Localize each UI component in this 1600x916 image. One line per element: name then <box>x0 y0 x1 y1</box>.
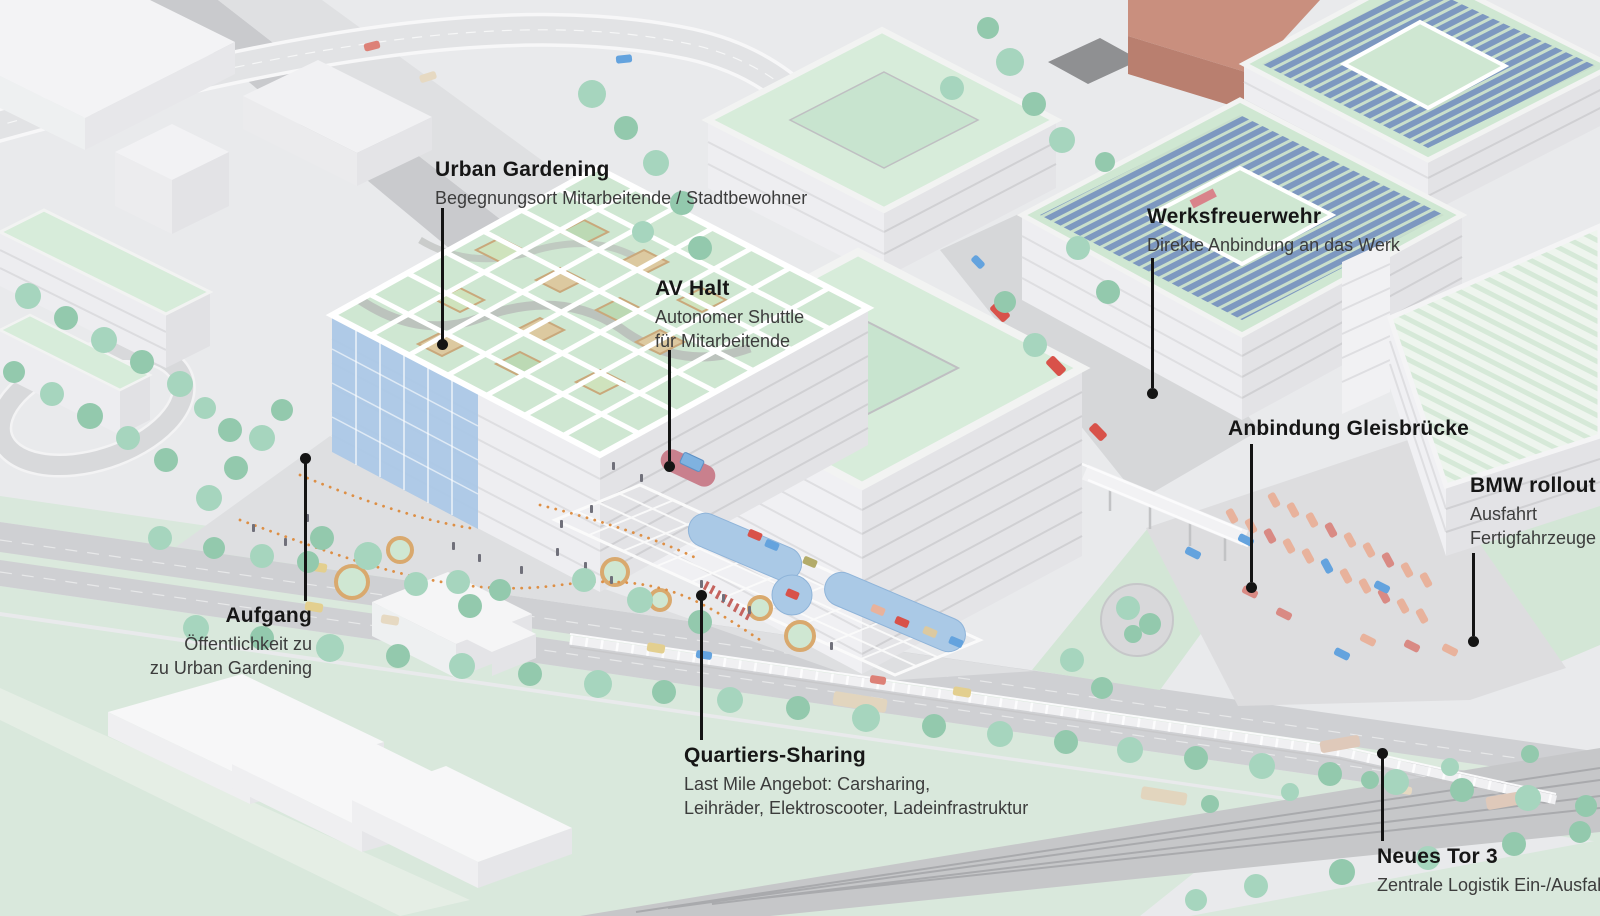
leader-line <box>441 208 444 343</box>
annotation-quartiers-sharing: Quartiers-Sharing Last Mile Angebot: Car… <box>684 744 1028 820</box>
leader-dot <box>696 590 707 601</box>
leader-dot <box>1246 582 1257 593</box>
leader-line <box>1381 758 1384 841</box>
leader-dot <box>300 453 311 464</box>
annotation-neues-tor-3: Neues Tor 3 Zentrale Logistik Ein-/Ausfa… <box>1377 845 1600 897</box>
leader-dot <box>664 461 675 472</box>
leader-line <box>668 350 671 461</box>
leader-dot <box>437 339 448 350</box>
annotation-subtitle: Ausfahrt <box>1470 502 1596 526</box>
annotation-urban-gardening: Urban Gardening Begegnungsort Mitarbeite… <box>435 158 807 210</box>
annotation-title: BMW rollout <box>1470 474 1596 498</box>
leader-line <box>1151 258 1154 388</box>
annotation-subtitle: Autonomer Shuttle <box>655 305 804 329</box>
annotation-subtitle: Direkte Anbindung an das Werk <box>1147 233 1400 257</box>
annotation-av-halt: AV Halt Autonomer Shuttle für Mitarbeite… <box>655 277 804 353</box>
site-plan-scene: Urban Gardening Begegnungsort Mitarbeite… <box>0 0 1600 916</box>
annotation-subtitle: Leihräder, Elektroscooter, Ladeinfrastru… <box>684 796 1028 820</box>
annotation-title: Aufgang <box>92 604 312 628</box>
annotation-title: Werksfreuerwehr <box>1147 205 1400 229</box>
circular-tree-pit <box>1101 584 1173 656</box>
annotation-subtitle: Begegnungsort Mitarbeitende / Stadtbewoh… <box>435 186 807 210</box>
annotation-subtitle: Zentrale Logistik Ein-/Ausfahrt <box>1377 873 1600 897</box>
annotation-subtitle: Fertigfahrzeuge <box>1470 526 1596 550</box>
annotation-werksfeuerwehr: Werksfreuerwehr Direkte Anbindung an das… <box>1147 205 1400 257</box>
leader-dot <box>1147 388 1158 399</box>
annotation-title: Neues Tor 3 <box>1377 845 1600 869</box>
annotation-subtitle: Öffentlichkeit zu <box>92 632 312 656</box>
annotation-title: AV Halt <box>655 277 804 301</box>
leader-dot <box>1377 748 1388 759</box>
annotation-subtitle: für Mitarbeitende <box>655 329 804 353</box>
leader-dot <box>1468 636 1479 647</box>
leader-line <box>1472 553 1475 636</box>
leader-line <box>304 463 307 601</box>
leader-line <box>700 600 703 740</box>
annotation-anbindung-gleisbruecke: Anbindung Gleisbrücke <box>1228 417 1469 441</box>
annotation-subtitle: Last Mile Angebot: Carsharing, <box>684 772 1028 796</box>
leader-line <box>1250 444 1253 582</box>
annotation-title: Quartiers-Sharing <box>684 744 1028 768</box>
annotation-subtitle: zu Urban Gardening <box>92 656 312 680</box>
annotation-title: Urban Gardening <box>435 158 807 182</box>
annotation-aufgang: Aufgang Öffentlichkeit zu zu Urban Garde… <box>92 604 312 680</box>
annotation-title: Anbindung Gleisbrücke <box>1228 417 1469 441</box>
annotation-bmw-rollout: BMW rollout Ausfahrt Fertigfahrzeuge <box>1470 474 1596 550</box>
